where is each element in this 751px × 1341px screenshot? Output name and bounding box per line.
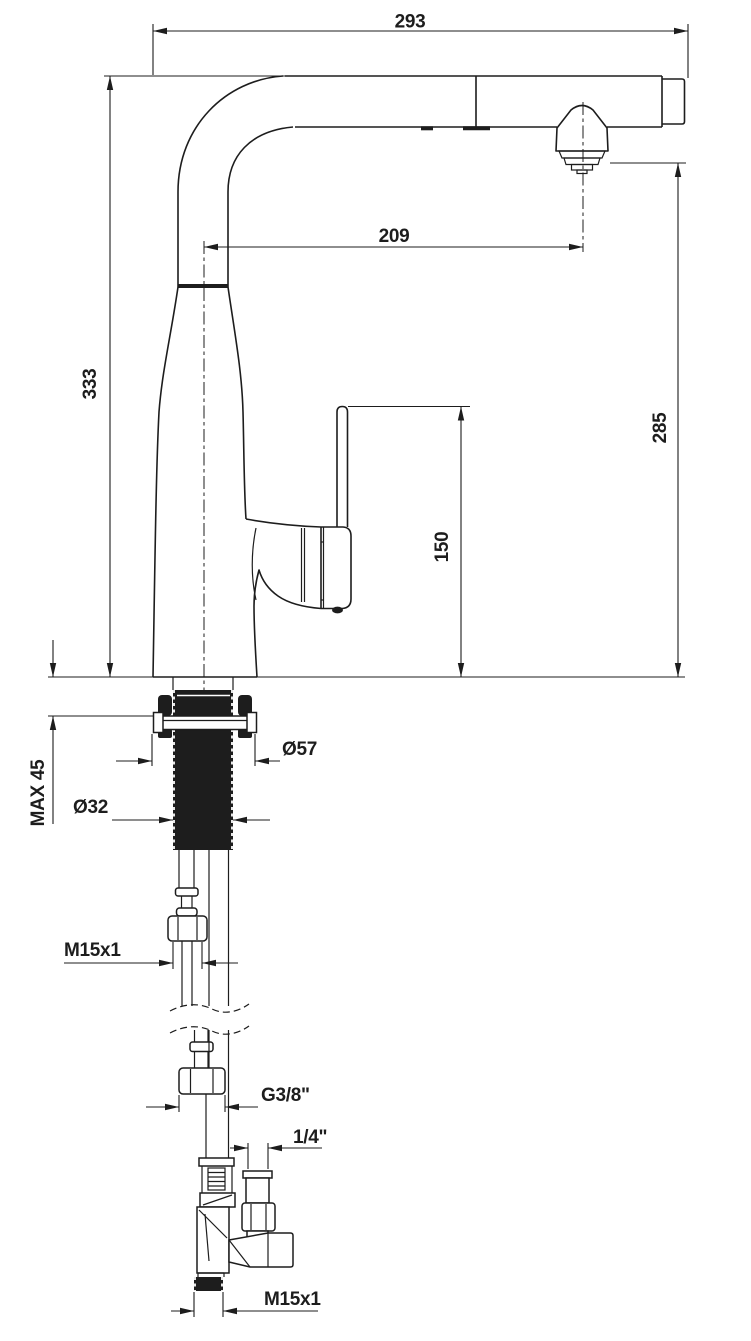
valve-outlet-thread [194, 1277, 223, 1291]
dim-m15-top-label: M15x1 [64, 940, 121, 961]
dim-quarter-label: 1/4" [293, 1127, 327, 1148]
pullout-head-endcap [662, 79, 685, 124]
dim-total-height-label: 333 [80, 369, 101, 400]
valve-body [197, 1207, 229, 1273]
angle-valve [194, 1158, 293, 1291]
handle-housing-underside [254, 570, 321, 677]
dimension-arrowheads [50, 28, 688, 1314]
handle-set-screw [332, 607, 343, 614]
faucet-body [153, 241, 257, 691]
drawing-canvas: 293 209 333 285 150 MAX 45 Ø57 Ø32 M15x1… [0, 0, 751, 1341]
quarter-branch [243, 1171, 272, 1178]
spout [178, 76, 685, 287]
dim-handle-height-label: 150 [432, 532, 453, 563]
dim-spout-reach-label: 293 [395, 12, 426, 33]
g38-nut [179, 1068, 225, 1094]
handle-lever [337, 407, 348, 528]
aerator [559, 151, 605, 158]
m15-nut [168, 916, 207, 941]
dim-base-diameter-label: Ø57 [282, 739, 317, 760]
mounting-shank [154, 678, 257, 851]
faucet-technical-drawing: 293 209 333 285 150 MAX 45 Ø57 Ø32 M15x1… [0, 0, 751, 1341]
supply-hose [168, 850, 225, 1094]
handle [246, 407, 351, 678]
dim-aerator-height-label: 285 [650, 412, 671, 444]
dim-shank-diameter-label: Ø32 [73, 797, 108, 818]
dim-m15-bottom-label: M15x1 [264, 1289, 321, 1310]
dim-g38-label: G3/8" [261, 1085, 310, 1106]
spray-nozzle [556, 102, 608, 252]
dimension-labels: 293 209 333 285 150 MAX 45 Ø57 Ø32 M15x1… [28, 12, 671, 1311]
dim-max-deck-label: MAX 45 [28, 759, 49, 827]
hose-break-lines [170, 1004, 249, 1034]
dimension-lines [48, 24, 688, 1317]
threaded-shank [173, 690, 233, 850]
dim-aerator-reach-label: 209 [379, 226, 410, 247]
handle-endcap [321, 527, 351, 609]
handle-housing-top [246, 519, 321, 527]
side-outlet [229, 1233, 293, 1267]
mounting-washer [154, 716, 256, 730]
